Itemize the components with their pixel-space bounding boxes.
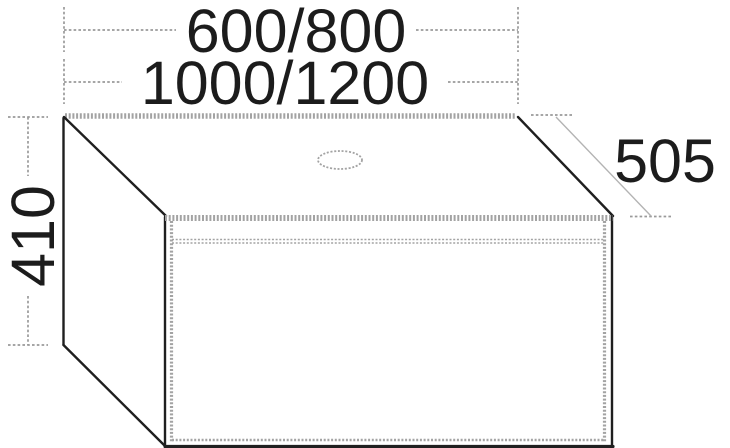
dimension-top-width-2: 1000/1200 [64, 49, 518, 117]
dimension-label-depth: 505 [614, 127, 716, 195]
dimension-height: 410 [0, 117, 67, 345]
dimension-label-height: 410 [0, 185, 67, 287]
countertop-right-edge [518, 117, 613, 216]
dimension-label-width-2: 1000/1200 [141, 49, 429, 117]
countertop-left-edge [64, 117, 166, 216]
cabinet [64, 116, 614, 447]
faucet-hole [318, 151, 362, 169]
technical-drawing-canvas: 600/800 1000/1200 410 505 [0, 0, 730, 448]
vanity-cabinet-drawing: 600/800 1000/1200 410 505 [0, 0, 730, 448]
side-panel-bottom-edge [64, 345, 166, 446]
dimension-depth: 505 [531, 115, 716, 217]
